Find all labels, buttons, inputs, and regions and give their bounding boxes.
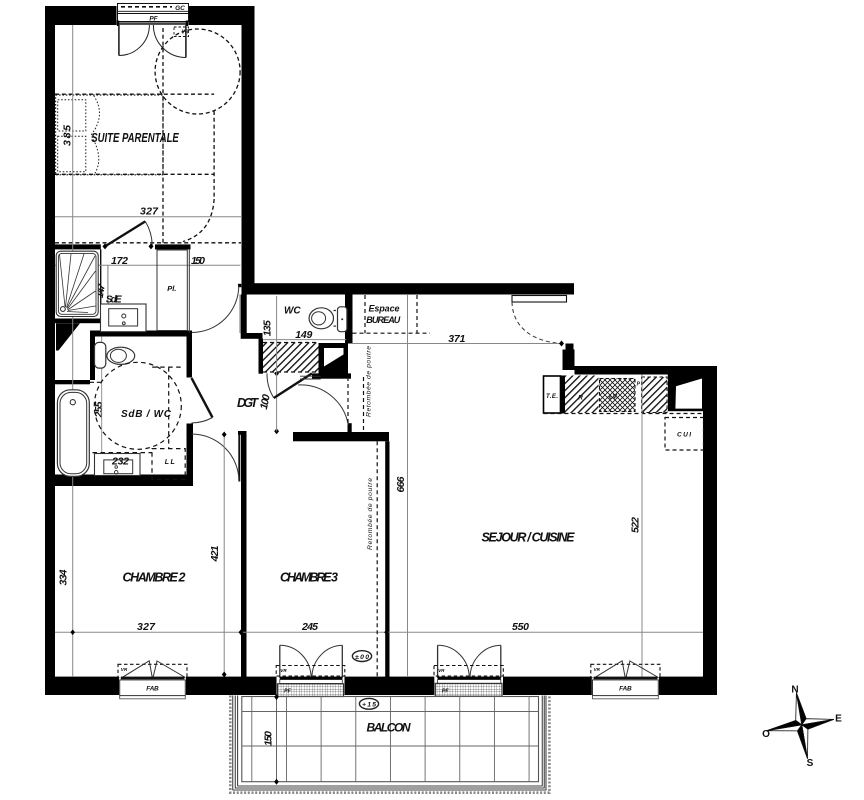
svg-text:PF: PF [442, 689, 449, 695]
svg-text:232: 232 [111, 455, 129, 467]
svg-text:LL: LL [165, 459, 175, 466]
svg-text:Pl.: Pl. [167, 284, 176, 293]
svg-text:WC: WC [284, 306, 301, 317]
svg-text:421: 421 [209, 545, 221, 562]
svg-text:522: 522 [629, 517, 641, 533]
svg-text:VR: VR [594, 667, 601, 672]
svg-text:E: E [835, 714, 842, 725]
svg-text:371: 371 [448, 333, 465, 345]
svg-text:VR: VR [121, 667, 128, 672]
svg-text:150: 150 [191, 255, 205, 267]
svg-text:149: 149 [295, 329, 312, 341]
svg-text:327: 327 [137, 621, 156, 633]
svg-text:N: N [791, 685, 798, 696]
svg-text:Espace: Espace [369, 304, 400, 314]
svg-text:T.E.: T.E. [546, 394, 558, 400]
svg-text:O: O [762, 729, 770, 740]
svg-text:550: 550 [512, 621, 529, 633]
svg-text:LV: LV [609, 393, 618, 400]
svg-text:FAB: FAB [619, 685, 632, 692]
svg-text:BALCON: BALCON [367, 720, 411, 734]
svg-text:R: R [578, 395, 583, 402]
svg-text:CHAMBRE 2: CHAMBRE 2 [123, 571, 186, 585]
svg-text:135: 135 [262, 320, 274, 336]
svg-text:PF: PF [149, 15, 158, 22]
svg-text:+15: +15 [362, 702, 376, 709]
svg-text:SEJOUR / CUISINE: SEJOUR / CUISINE [482, 530, 576, 544]
svg-text:FAB: FAB [146, 685, 159, 692]
svg-text:VR: VR [438, 668, 445, 673]
svg-text:S: S [807, 758, 814, 769]
svg-text:±00: ±00 [355, 654, 369, 661]
svg-text:PF: PF [284, 689, 291, 695]
svg-text:245: 245 [301, 621, 318, 633]
svg-text:Retombée de poutre: Retombée de poutre [366, 346, 373, 417]
svg-text:CHAMBRE 3: CHAMBRE 3 [280, 571, 338, 585]
svg-text:Retombée de poutre: Retombée de poutre [367, 478, 374, 550]
svg-text:BUREAU: BUREAU [366, 315, 401, 325]
svg-text:334: 334 [58, 569, 70, 585]
svg-text:CUI: CUI [677, 432, 691, 439]
svg-text:DGT: DGT [237, 396, 259, 410]
svg-text:VR: VR [280, 668, 287, 673]
svg-text:666: 666 [395, 476, 407, 492]
svg-text:172: 172 [111, 255, 128, 267]
svg-text:150: 150 [263, 731, 275, 746]
svg-text:385: 385 [62, 125, 74, 146]
svg-text:327: 327 [140, 206, 159, 218]
svg-text:SdB / WC: SdB / WC [121, 409, 172, 420]
svg-text:SUITE PARENTALE: SUITE PARENTALE [91, 131, 179, 145]
